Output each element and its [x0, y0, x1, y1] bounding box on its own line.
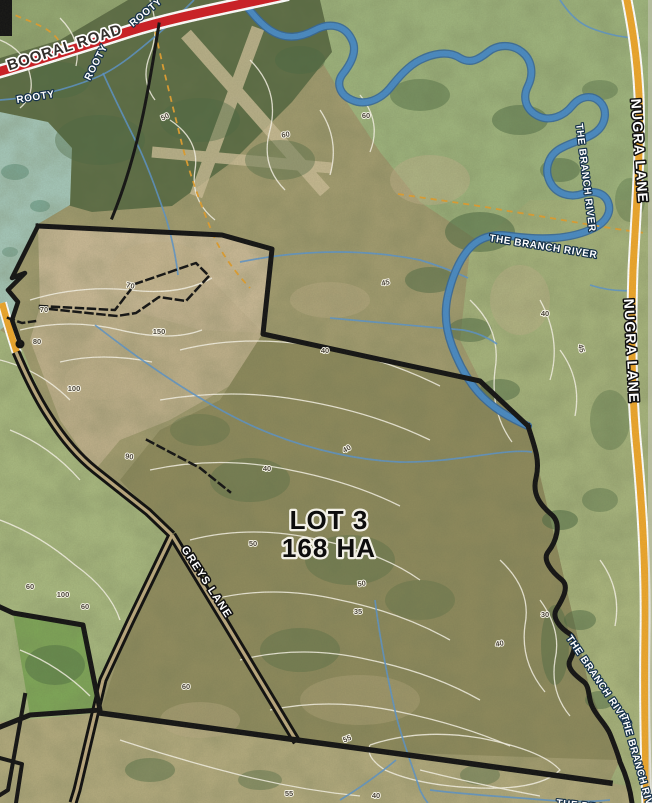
contour-elevation-label: 90 [125, 451, 135, 461]
contour-elevation-label: 70 [40, 305, 48, 314]
contour-elevation-label: 80 [33, 337, 41, 346]
aerial-map-canvas: ROOTYROOTYROOTYTHE BRANCH RIVERTHE BRANC… [0, 0, 652, 803]
map-edge-strip [648, 0, 652, 803]
photo-grain [0, 0, 652, 803]
contour-elevation-label: 60 [182, 682, 190, 691]
contour-elevation-label: 50 [249, 539, 257, 548]
contour-elevation-label: 60 [362, 111, 370, 120]
contour-elevation-label: 60 [281, 129, 291, 139]
contour-elevation-label: 35 [354, 607, 362, 616]
lot-name-label: LOT 3 [290, 505, 369, 535]
contour-elevation-label: 40 [495, 638, 505, 648]
contour-elevation-label: 55 [285, 789, 293, 798]
contour-elevation-label: 40 [541, 309, 549, 318]
contour-elevation-label: 40 [321, 346, 329, 355]
contour-elevation-label: 60 [26, 582, 34, 591]
contour-elevation-label: 100 [68, 384, 81, 393]
map-viewport[interactable]: ROOTYROOTYROOTYTHE BRANCH RIVERTHE BRANC… [0, 0, 652, 803]
lot-area-label: 168 HA [282, 533, 376, 563]
contour-elevation-label: 150 [153, 327, 166, 336]
contour-elevation-label: 50 [357, 578, 367, 588]
contour-elevation-label: 100 [57, 590, 70, 599]
contour-elevation-label: 40 [263, 464, 271, 473]
contour-elevation-label: 40 [372, 791, 380, 800]
contour-elevation-label: 30 [541, 610, 549, 619]
contour-elevation-label: 60 [81, 602, 89, 611]
